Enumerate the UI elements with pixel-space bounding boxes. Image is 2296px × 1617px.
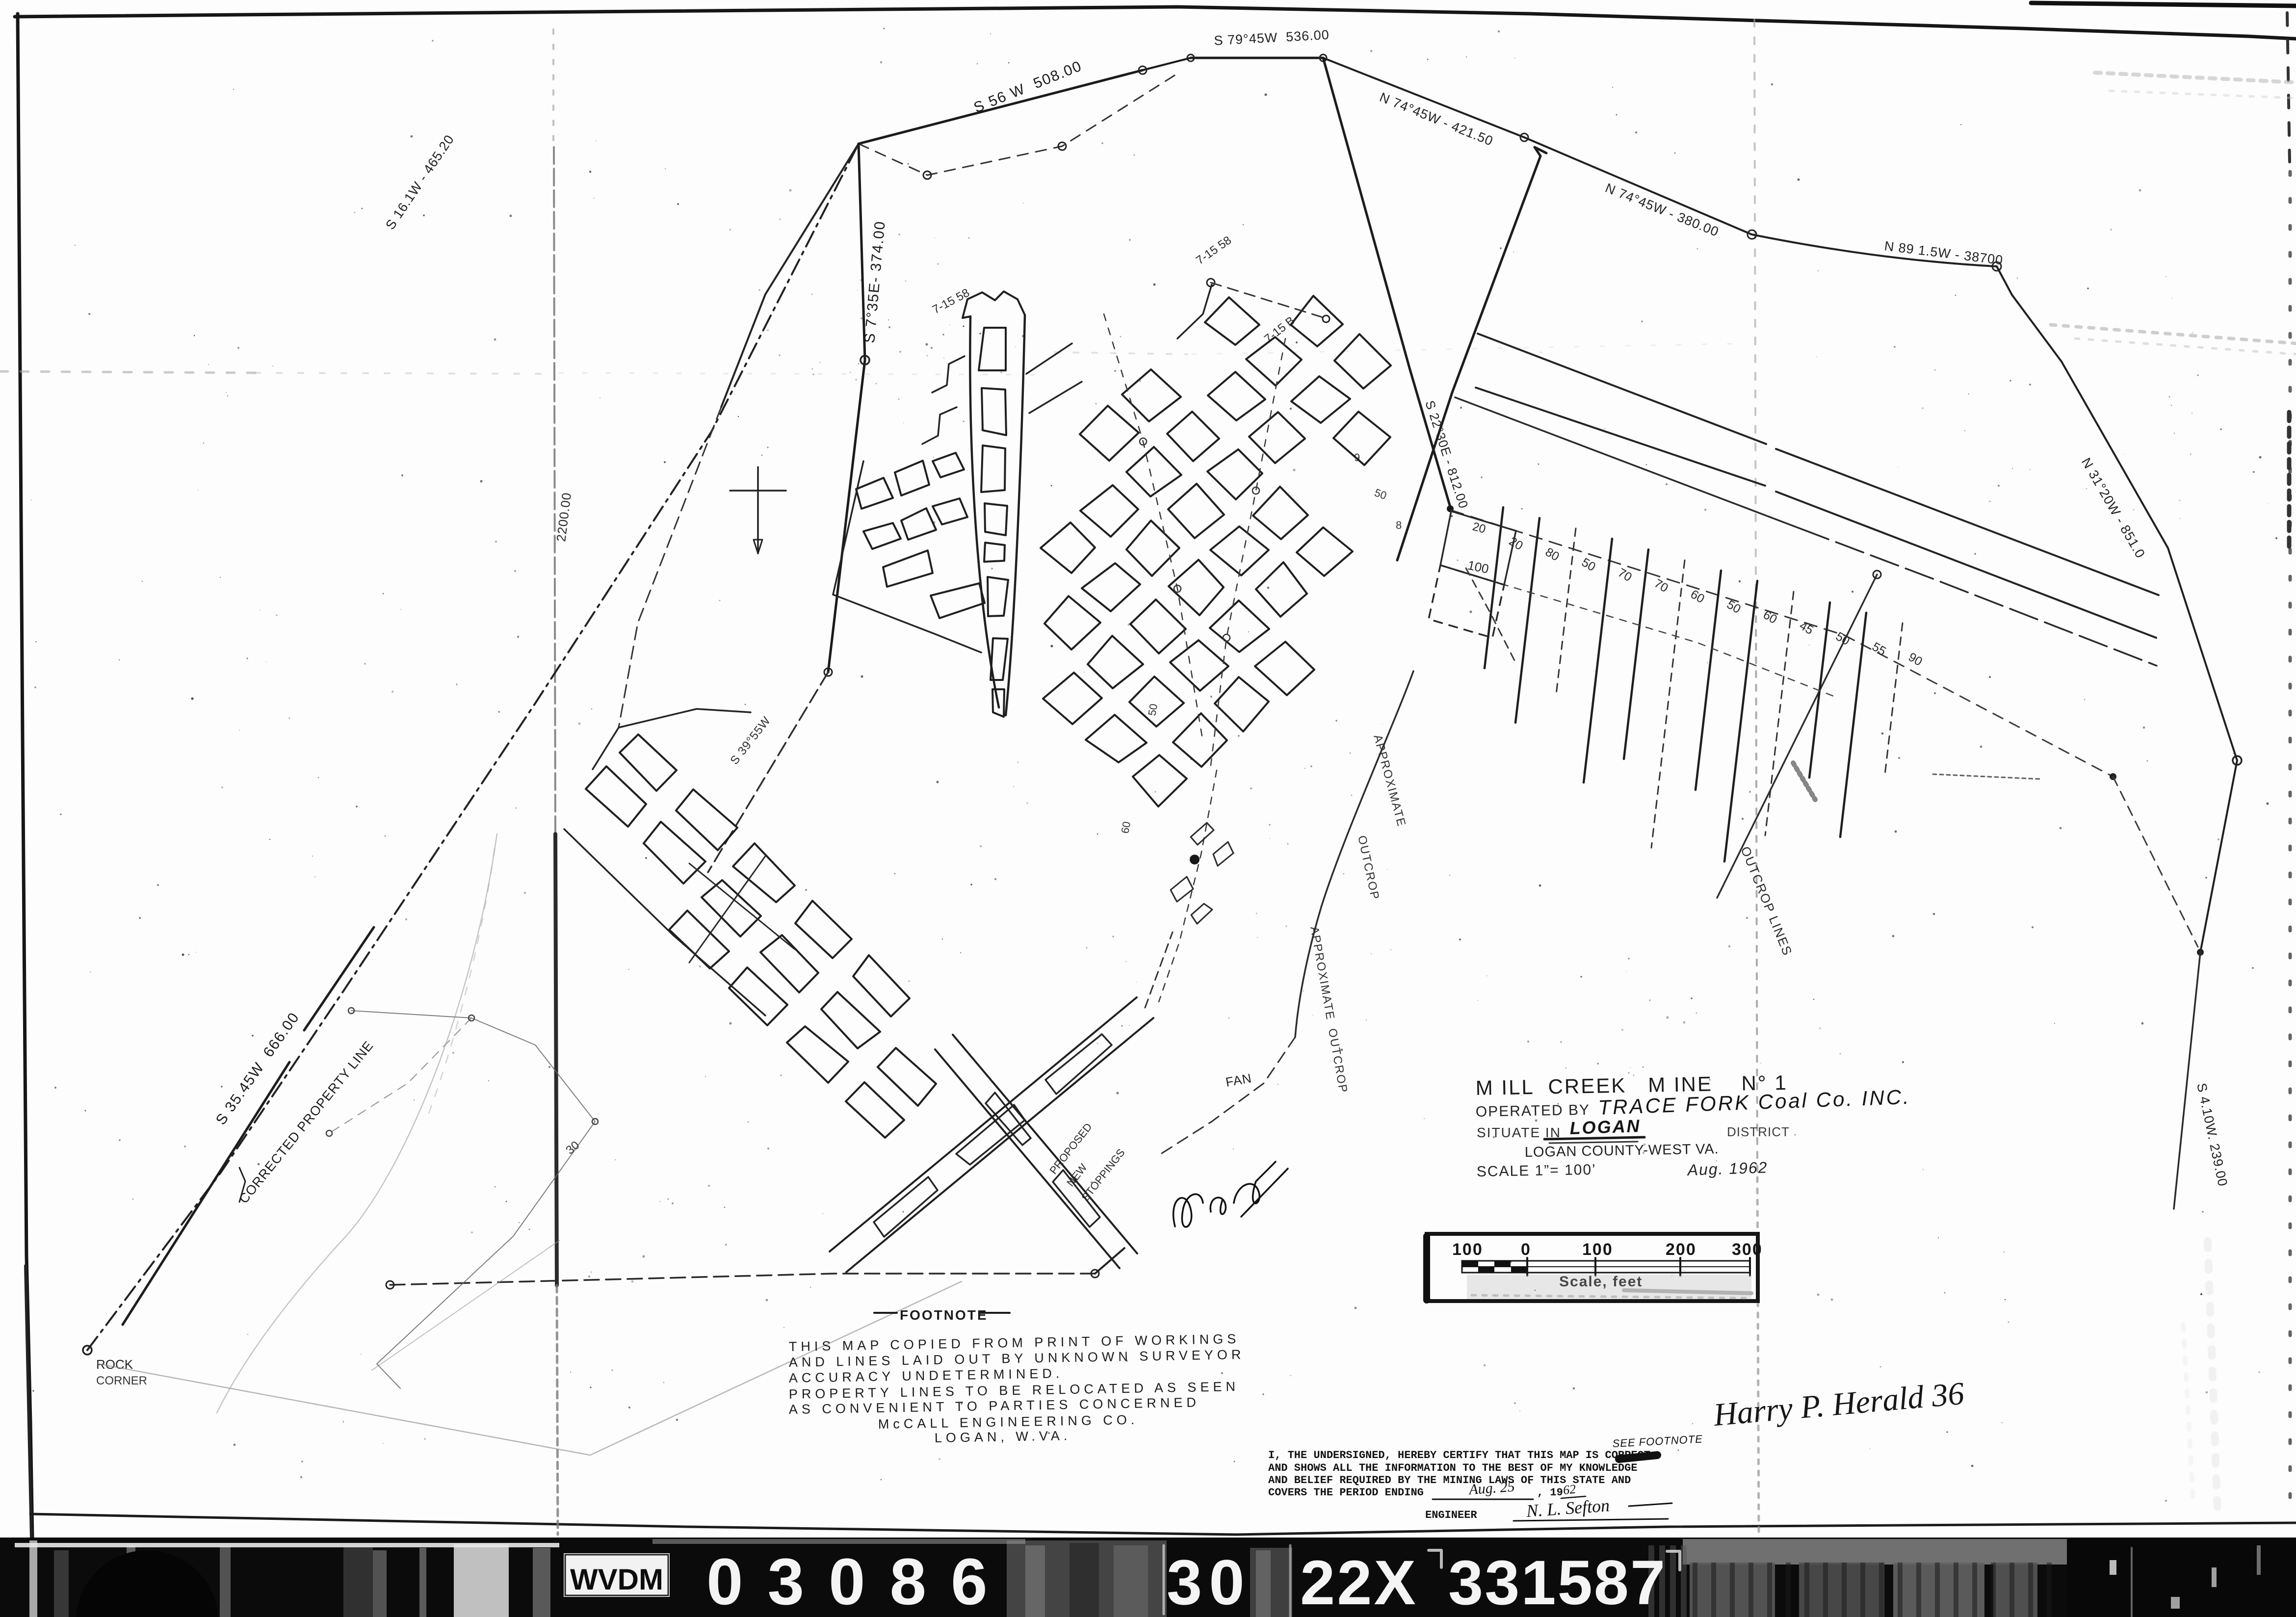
svg-text:03086: 03086 bbox=[706, 1545, 1012, 1617]
svg-text:, 19: , 19 bbox=[1537, 1487, 1563, 1499]
svg-text:100: 100 bbox=[1582, 1240, 1613, 1259]
svg-text:I, THE UNDERSIGNED, HEREBY CER: I, THE UNDERSIGNED, HEREBY CERTIFY THAT … bbox=[1268, 1449, 1650, 1461]
svg-text:50: 50 bbox=[1146, 703, 1160, 716]
svg-text:SCALE 1”= 100’: SCALE 1”= 100’ bbox=[1477, 1162, 1597, 1180]
svg-text:300: 300 bbox=[1732, 1240, 1763, 1259]
svg-text:30: 30 bbox=[1167, 1546, 1252, 1617]
svg-text:ENGINEER: ENGINEER bbox=[1425, 1509, 1477, 1521]
svg-text:22X: 22X bbox=[1300, 1548, 1418, 1617]
svg-text:LOGAN, W.VA.: LOGAN, W.VA. bbox=[935, 1428, 1071, 1445]
svg-text:CORNER: CORNER bbox=[96, 1374, 147, 1387]
svg-text:200: 200 bbox=[1666, 1240, 1696, 1259]
svg-text:60: 60 bbox=[1119, 820, 1133, 834]
svg-text:62: 62 bbox=[1563, 1482, 1577, 1497]
svg-text:OPERATED BY: OPERATED BY bbox=[1476, 1102, 1591, 1120]
svg-text:WVDM: WVDM bbox=[570, 1563, 663, 1596]
svg-text:0: 0 bbox=[1521, 1240, 1531, 1259]
svg-text:DISTRICT: DISTRICT bbox=[1727, 1124, 1790, 1139]
svg-text:8: 8 bbox=[1396, 519, 1402, 531]
svg-text:100: 100 bbox=[1452, 1240, 1483, 1259]
svg-text:FOOTNOTE: FOOTNOTE bbox=[900, 1307, 988, 1323]
svg-text:Aug. 25: Aug. 25 bbox=[1467, 1479, 1515, 1498]
svg-text:AND SHOWS ALL THE INFORMATION: AND SHOWS ALL THE INFORMATION TO THE BES… bbox=[1268, 1462, 1638, 1474]
svg-text:Aug. 1962: Aug. 1962 bbox=[1686, 1158, 1768, 1179]
svg-text:AND BELIEF REQUIRED BY THE MIN: AND BELIEF REQUIRED BY THE MINING LAWS O… bbox=[1268, 1474, 1631, 1487]
svg-text:COVERS THE PERIOD ENDING: COVERS THE PERIOD ENDING bbox=[1268, 1487, 1424, 1499]
svg-text:LOGAN: LOGAN bbox=[1569, 1116, 1641, 1138]
svg-text:331587: 331587 bbox=[1448, 1548, 1667, 1617]
